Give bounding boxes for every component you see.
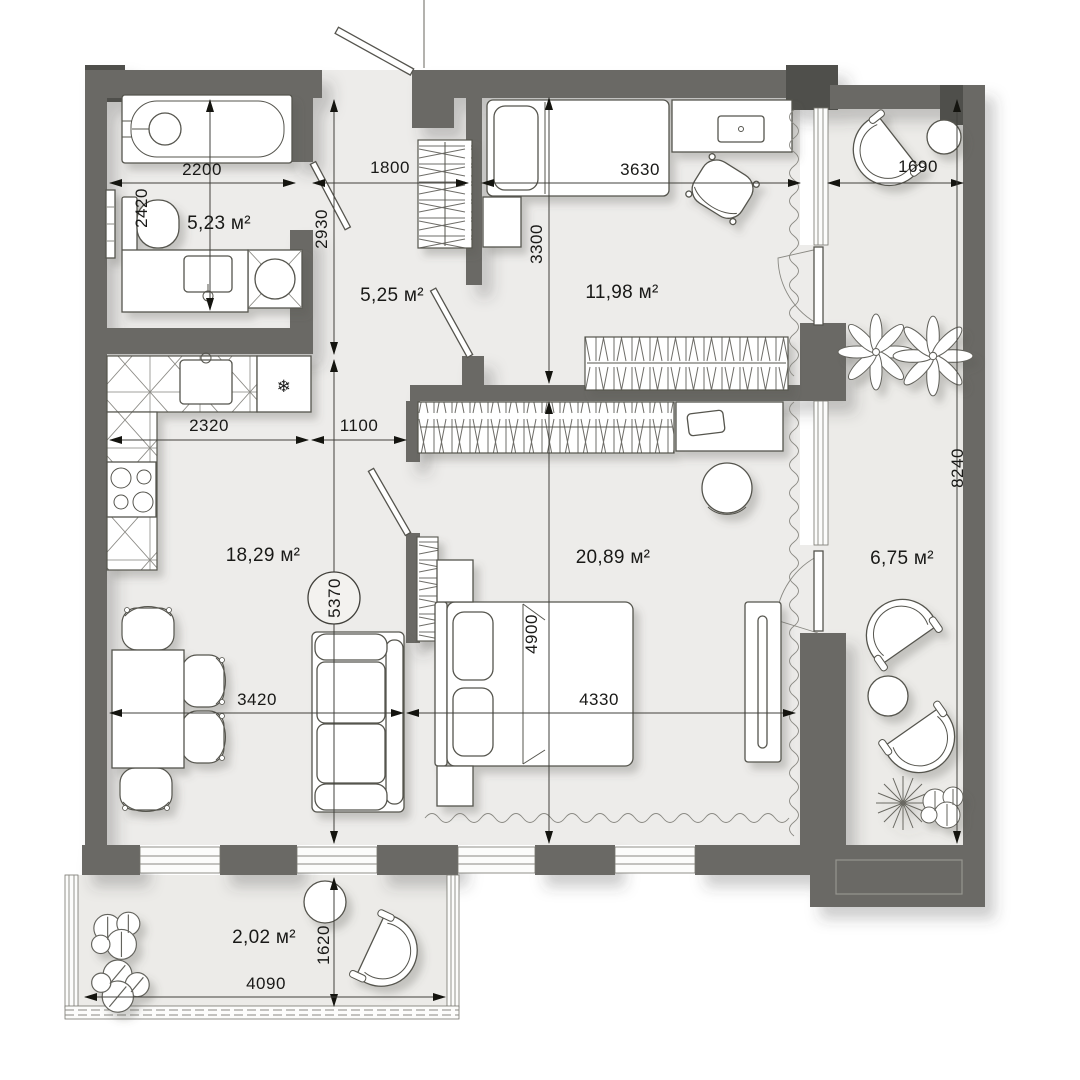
- floor-plan-drawing: ❄: [0, 0, 1080, 1080]
- dim-8240: 8240: [948, 448, 967, 488]
- dim-2930: 2930: [312, 209, 331, 249]
- window-living-1: [140, 847, 220, 873]
- stool: [702, 463, 752, 514]
- towel-radiator: [106, 190, 115, 258]
- dim-3630: 3630: [620, 160, 660, 179]
- fridge-snowflake-icon: ❄: [277, 377, 292, 396]
- wardrobe-bedroom-small: [585, 337, 788, 390]
- top-wall-left: [85, 70, 322, 98]
- window-bedroom-2: [615, 847, 695, 873]
- fridge: ❄: [257, 356, 311, 412]
- loggia-partition-lower: [800, 633, 846, 847]
- sofa: [312, 632, 404, 812]
- dining-chair-bottom: [120, 768, 172, 812]
- bathroom-bottom-wall: [85, 328, 313, 354]
- bedroom-master-door-threshold: [406, 462, 420, 533]
- bench: [676, 402, 783, 451]
- bottom-pier-1: [82, 845, 140, 875]
- loggia-side-table-bottom: [868, 676, 908, 716]
- bathroom-wall-upper: [290, 70, 313, 162]
- dim-3300: 3300: [527, 224, 546, 264]
- label-kitchen-living: 18,29 м²: [226, 545, 301, 566]
- washing-machine: [248, 250, 302, 308]
- dining-table: [112, 650, 184, 768]
- dim-4090: 4090: [246, 974, 286, 993]
- bottom-pier-3: [377, 845, 458, 875]
- bedside-table-small: [483, 197, 521, 247]
- floor-mirror: [745, 602, 781, 762]
- kitchen-counter-top: [107, 353, 257, 412]
- bottom-pier-2: [220, 845, 297, 875]
- label-balcony: 2,02 м²: [232, 927, 296, 948]
- dim-1690: 1690: [898, 157, 938, 176]
- loggia-partition-block: [800, 323, 846, 401]
- dim-1620: 1620: [314, 925, 333, 965]
- bathtub: [122, 95, 292, 163]
- bathroom-sink-counter: [122, 250, 248, 312]
- bathroom-door-threshold: [290, 160, 313, 230]
- dim-1100: 1100: [340, 416, 379, 435]
- window-bedroom-1: [458, 847, 535, 873]
- dining-chair-right-1: [182, 655, 226, 707]
- dim-2200: 2200: [182, 160, 222, 179]
- label-loggia: 6,75 м²: [870, 548, 934, 569]
- wardrobe-bedroom-master: [418, 402, 674, 453]
- dim-1800: 1800: [370, 158, 410, 177]
- dim-4330: 4330: [579, 690, 619, 709]
- label-bedroom-small: 11,98 м²: [585, 282, 658, 303]
- plant-flower-2: [893, 316, 973, 396]
- plant-spiky: [876, 776, 930, 830]
- nightstand-top: [437, 560, 473, 602]
- kitchen-sink: [180, 360, 232, 404]
- hallway-closet: [418, 140, 472, 248]
- label-hallway: 5,25 м²: [360, 285, 424, 306]
- balcony-table: [304, 881, 346, 923]
- dining-chair-right-2: [182, 711, 226, 763]
- window-loggia-lower: [814, 401, 828, 545]
- plant-monstera-balcony-1: [92, 912, 140, 959]
- dining-chair-top: [122, 606, 174, 650]
- desk: [672, 100, 792, 152]
- bottom-pier-4: [535, 845, 615, 875]
- dim-5370: 5370: [325, 578, 344, 618]
- floor-plan-canvas: ❄: [0, 0, 1080, 1080]
- entrance-pier: [412, 70, 454, 128]
- dim-4900: 4900: [522, 614, 541, 654]
- dim-2420: 2420: [132, 188, 151, 228]
- bottom-pier-5: [695, 845, 812, 875]
- dim-2320: 2320: [189, 416, 229, 435]
- entrance-door-leaf: [335, 27, 414, 75]
- entrance-threshold: [322, 70, 412, 100]
- label-bathroom: 5,23 м²: [187, 213, 251, 234]
- nightstand-bottom: [437, 766, 473, 806]
- stove: [107, 462, 156, 517]
- loggia-side-table-top: [927, 120, 961, 154]
- left-outer-wall: [85, 70, 107, 875]
- dim-3420: 3420: [237, 690, 277, 709]
- window-loggia-upper: [814, 108, 828, 245]
- label-bedroom-master: 20,89 м²: [576, 547, 651, 568]
- single-bed: [487, 100, 669, 196]
- window-living-2: [297, 847, 377, 873]
